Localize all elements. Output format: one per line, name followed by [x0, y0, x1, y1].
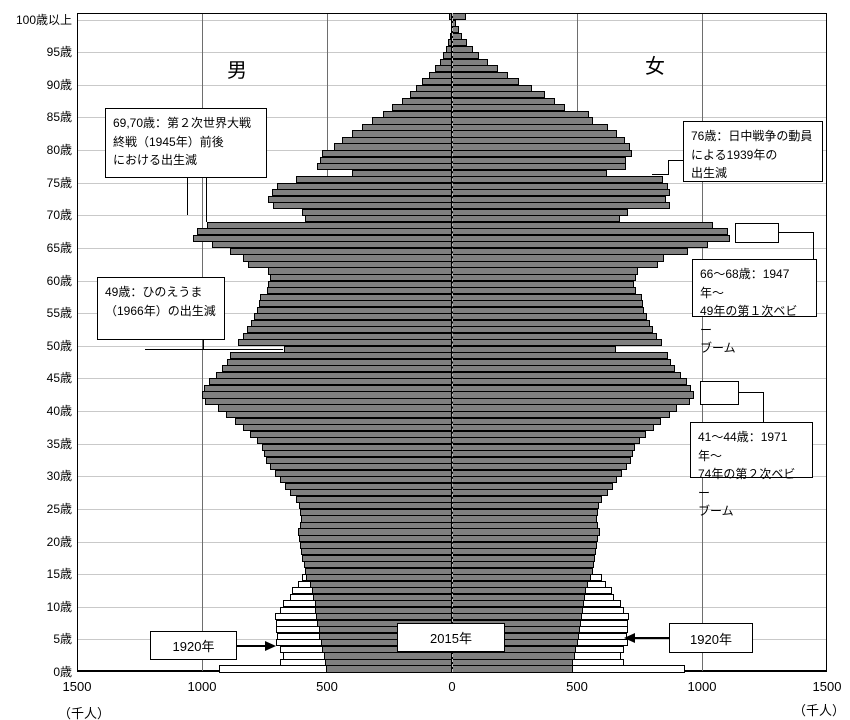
bar-female-2015-age-96: [452, 39, 467, 46]
bar-male-2015-age-77: [317, 163, 452, 170]
bar-female-2015-age-37: [452, 424, 654, 431]
age-tick-40: 40歳: [0, 404, 72, 418]
unit-label-left: （千人）: [58, 703, 110, 720]
age-tick-100plus: 100歳以上: [0, 13, 72, 27]
bar-female-2015-age-84: [452, 117, 593, 124]
bar-male-2015-age-63: [243, 254, 452, 261]
bar-male-2015-age-11: [313, 594, 452, 601]
annotation-bracket-baby-boom-2: [700, 381, 739, 405]
bar-male-2015-age-48: [230, 352, 452, 359]
arrow-left-icon: [624, 633, 635, 643]
bar-male-2015-age-37: [243, 424, 453, 431]
bar-female-2015-age-53: [452, 320, 650, 327]
bar-female-2015-age-79: [452, 150, 632, 157]
bar-female-2015-age-85: [452, 111, 589, 118]
age-tick-55: 55歳: [0, 306, 72, 320]
bar-female-2015-age-93: [452, 59, 488, 66]
age-tick-20: 20歳: [0, 535, 72, 549]
age-tick-65: 65歳: [0, 241, 72, 255]
annotation-bracket-baby-boom-1: [735, 223, 779, 243]
center-axis-line: [452, 13, 453, 672]
annotation-line-ww2-end-0: [187, 178, 188, 215]
bar-male-2015-age-34: [262, 444, 452, 451]
bar-female-2015-age-32: [452, 457, 631, 464]
bar-female-2015-age-30: [452, 470, 622, 477]
bar-female-2015-age-87: [452, 98, 555, 105]
bar-male-2015-age-36: [250, 431, 452, 438]
bar-male-2015-age-71: [273, 202, 452, 209]
bar-female-2015-age-49: [452, 346, 616, 353]
age-tick-5: 5歳: [0, 632, 72, 646]
bar-male-2015-age-86: [392, 104, 452, 111]
bar-male-2015-age-75: [296, 176, 452, 183]
chart-layer: 0歳5歳10歳15歳20歳25歳30歳35歳40歳45歳50歳55歳60歳65歳…: [0, 0, 850, 720]
bar-male-2015-age-26: [296, 496, 452, 503]
bar-male-2015-age-18: [301, 548, 452, 555]
bar-male-2015-age-56: [259, 300, 452, 307]
bar-female-2015-age-36: [452, 431, 646, 438]
bar-female-2015-age-50: [452, 339, 662, 346]
bar-female-2015-age-35: [452, 437, 640, 444]
age-tick-25: 25歳: [0, 502, 72, 516]
bar-male-2015-age-59: [268, 281, 452, 288]
bar-male-2015-age-60: [270, 274, 452, 281]
arrow-line-left: [237, 645, 266, 647]
bar-female-2015-age-28: [452, 483, 613, 490]
bar-male-2015-age-69: [305, 215, 452, 222]
bar-male-2015-age-89: [416, 85, 452, 92]
bar-male-2015-age-33: [264, 450, 452, 457]
bar-male-2015-age-44: [209, 378, 453, 385]
age-tick-90: 90歳: [0, 78, 72, 92]
bar-male-2015-age-76: [352, 170, 452, 177]
bar-male-2015-age-52: [247, 326, 452, 333]
bar-female-2015-age-70: [452, 209, 628, 216]
bar-male-2015-age-81: [342, 137, 452, 144]
bar-male-2015-age-79: [322, 150, 452, 157]
bar-male-2015-age-68: [207, 222, 452, 229]
bar-female-2015-age-2: [452, 652, 575, 659]
bar-female-2015-age-90: [452, 78, 519, 85]
bar-female-2015-age-51: [452, 333, 657, 340]
annotation-line-baby-boom-1-0: [779, 232, 813, 233]
year-callout-2015-label: 2015年: [430, 628, 472, 647]
bar-female-2015-age-41: [452, 398, 690, 405]
annotation-box-baby-boom-2: 41〜44歳：1971年〜 74年の第２次ベビー ブーム: [690, 422, 813, 478]
bar-male-2015-age-57: [260, 294, 452, 301]
bar-female-2015-age-56: [452, 300, 643, 307]
bar-female-2015-age-22: [452, 522, 598, 529]
bar-male-2015-age-50: [238, 339, 453, 346]
x-tick-3: 0: [422, 679, 482, 694]
age-tick-95: 95歳: [0, 45, 72, 59]
bar-female-2015-age-18: [452, 548, 596, 555]
bar-male-2015-age-67: [197, 228, 452, 235]
year-callout-2015: 2015年: [397, 623, 505, 652]
bar-male-2015-age-13: [310, 581, 453, 588]
bar-female-2015-age-88: [452, 91, 545, 98]
bar-male-2015-age-42: [202, 391, 453, 398]
bar-male-2015-age-53: [251, 320, 452, 327]
bar-male-2015-age-92: [435, 65, 453, 72]
bar-female-2015-age-83: [452, 124, 608, 131]
bar-female-2015-age-94: [452, 52, 479, 59]
age-tick-75: 75歳: [0, 176, 72, 190]
bar-male-2015-age-15: [305, 568, 453, 575]
bar-female-2015-age-16: [452, 561, 594, 568]
age-tick-50: 50歳: [0, 339, 72, 353]
female-side-label: 女: [645, 50, 666, 79]
bar-female-2015-age-97: [452, 33, 462, 40]
bar-female-2015-age-0: [452, 665, 573, 672]
bar-male-2015-age-65: [212, 241, 452, 248]
age-tick-85: 85歳: [0, 110, 72, 124]
bar-female-2015-age-62: [452, 261, 658, 268]
year-callout-1920-left: 1920年: [150, 631, 237, 660]
bar-male-2015-age-24: [300, 509, 452, 516]
age-tick-15: 15歳: [0, 567, 72, 581]
bar-female-2015-age-91: [452, 72, 508, 79]
bar-male-2015-age-14: [306, 574, 452, 581]
bar-male-2015-age-10: [315, 600, 453, 607]
bar-male-2015-age-87: [402, 98, 452, 105]
annotation-box-baby-boom-1: 66〜68歳：1947年〜 49年の第１次ベビー ブーム: [692, 259, 817, 317]
age-tick-45: 45歳: [0, 371, 72, 385]
bar-male-2015-age-41: [205, 398, 452, 405]
bar-female-2015-age-34: [452, 444, 635, 451]
bar-male-2015-age-73: [272, 189, 452, 196]
bar-female-2015-age-92: [452, 65, 498, 72]
annotation-line-hinoeuma-0: [203, 340, 204, 349]
age-tick-30: 30歳: [0, 469, 72, 483]
bar-male-2015-age-8: [316, 613, 452, 620]
bar-male-2015-age-78: [320, 157, 452, 164]
bar-male-2015-age-27: [290, 489, 452, 496]
bar-male-2015-age-72: [268, 196, 452, 203]
bar-female-2015-age-82: [452, 130, 617, 137]
bar-male-2015-age-19: [300, 542, 452, 549]
bar-female-2015-age-69: [452, 215, 620, 222]
x-tick-1: 1000: [172, 679, 232, 694]
bar-male-2015-age-88: [410, 91, 453, 98]
annotation-line-dip-1939-2: [652, 174, 668, 175]
bar-female-2015-age-10: [452, 600, 584, 607]
bar-male-2015-age-62: [248, 261, 452, 268]
bar-female-2015-age-76: [452, 170, 607, 177]
bar-female-2015-age-100: [452, 13, 466, 20]
age-tick-80: 80歳: [0, 143, 72, 157]
bar-female-2015-age-46: [452, 365, 675, 372]
bar-female-2015-age-15: [452, 568, 593, 575]
bar-female-2015-age-31: [452, 463, 627, 470]
bar-male-2015-age-21: [298, 528, 453, 535]
bar-male-2015-age-46: [222, 365, 453, 372]
bar-female-2015-age-29: [452, 476, 617, 483]
bar-male-2015-age-39: [226, 411, 452, 418]
bar-male-2015-age-23: [301, 515, 453, 522]
bar-female-2015-age-59: [452, 281, 634, 288]
bar-male-2015-age-49: [284, 346, 452, 353]
bar-male-2015-age-74: [277, 183, 452, 190]
bar-female-2015-age-52: [452, 326, 653, 333]
age-tick-0: 0歳: [0, 665, 72, 679]
bar-male-2015-age-80: [334, 143, 452, 150]
bar-male-2015-age-51: [243, 333, 453, 340]
bar-male-2015-age-94: [443, 52, 452, 59]
bar-male-2015-age-58: [267, 287, 453, 294]
year-callout-1920-left-label: 1920年: [173, 636, 215, 655]
population-pyramid-chart: 0歳5歳10歳15歳20歳25歳30歳35歳40歳45歳50歳55歳60歳65歳…: [0, 0, 850, 720]
male-side-label: 男: [227, 54, 248, 83]
bar-male-2015-age-64: [230, 248, 452, 255]
x-tick-0: 1500: [47, 679, 107, 694]
bar-female-2015-age-66: [452, 235, 730, 242]
bar-female-2015-age-38: [452, 418, 661, 425]
arrow-line-right: [635, 637, 669, 639]
bar-male-2015-age-16: [304, 561, 453, 568]
bar-female-2015-age-60: [452, 274, 636, 281]
bar-female-2015-age-24: [452, 509, 598, 516]
bar-male-2015-age-45: [216, 372, 453, 379]
bar-male-2015-age-82: [352, 130, 452, 137]
arrow-right-icon: [265, 641, 276, 651]
bar-female-2015-age-64: [452, 248, 688, 255]
bar-male-2015-age-2: [324, 652, 453, 659]
annotation-line-ww2-end-1: [206, 178, 207, 222]
annotation-line-baby-boom-1-1: [813, 232, 814, 259]
bar-female-2015-age-80: [452, 143, 630, 150]
bar-female-2015-age-65: [452, 241, 708, 248]
bar-female-2015-age-23: [452, 515, 597, 522]
year-callout-1920-right: 1920年: [669, 623, 753, 653]
bar-male-2015-age-43: [204, 385, 452, 392]
bar-female-2015-age-1: [452, 659, 573, 666]
bar-female-2015-age-19: [452, 542, 597, 549]
bar-female-2015-age-9: [452, 607, 583, 614]
x-tick-4: 500: [547, 679, 607, 694]
bar-male-2015-age-83: [362, 124, 452, 131]
annotation-box-ww2-end: 69,70歳：第２次世界大戦 終戦（1945年）前後 における出生減: [105, 108, 267, 178]
bar-male-2015-age-20: [299, 535, 452, 542]
unit-label-right: （千人）: [793, 700, 845, 719]
year-callout-1920-right-label: 1920年: [690, 629, 732, 648]
bar-female-2015-age-25: [452, 502, 599, 509]
bar-female-2015-age-86: [452, 104, 565, 111]
bar-female-2015-age-57: [452, 294, 642, 301]
bar-female-2015-age-75: [452, 176, 663, 183]
bar-female-2015-age-11: [452, 594, 585, 601]
bar-male-2015-age-29: [280, 476, 452, 483]
bar-female-2015-age-42: [452, 391, 694, 398]
bar-male-2015-age-28: [285, 483, 452, 490]
annotation-box-hinoeuma: 49歳：ひのえうま （1966年）の出生減: [97, 277, 225, 340]
annotation-box-dip-1939: 76歳：日中戦争の動員 による1939年の 出生減: [683, 121, 823, 182]
annotation-line-dip-1939-0: [668, 160, 683, 161]
bar-male-2015-age-91: [429, 72, 452, 79]
bar-male-2015-age-0: [326, 665, 452, 672]
bar-male-2015-age-25: [299, 502, 452, 509]
bar-female-2015-age-39: [452, 411, 670, 418]
bar-male-2015-age-70: [302, 209, 452, 216]
x-tick-6: 1500: [797, 679, 850, 694]
annotation-line-baby-boom-2-0: [739, 392, 763, 393]
bar-female-2015-age-17: [452, 555, 595, 562]
bar-male-2015-age-32: [266, 457, 453, 464]
x-tick-5: 1000: [672, 679, 732, 694]
bar-female-2015-age-47: [452, 359, 671, 366]
bar-male-2015-age-47: [227, 359, 453, 366]
bar-male-2015-age-55: [257, 307, 452, 314]
bar-male-2015-age-1: [325, 659, 452, 666]
age-tick-60: 60歳: [0, 274, 72, 288]
bar-female-2015-age-33: [452, 450, 633, 457]
bar-female-2015-age-73: [452, 189, 670, 196]
bar-male-2015-age-22: [300, 522, 453, 529]
annotation-line-hinoeuma-1: [145, 349, 283, 350]
bar-female-2015-age-78: [452, 157, 626, 164]
annotation-line-baby-boom-2-1: [763, 392, 764, 422]
bar-female-2015-age-27: [452, 489, 608, 496]
bar-male-2015-age-40: [218, 404, 452, 411]
bar-female-2015-age-74: [452, 183, 668, 190]
bar-male-2015-age-38: [235, 418, 452, 425]
bar-male-2015-age-61: [268, 267, 452, 274]
bar-female-2015-age-54: [452, 313, 647, 320]
bar-female-2015-age-95: [452, 46, 473, 53]
age-tick-10: 10歳: [0, 600, 72, 614]
bar-male-2015-age-66: [193, 235, 452, 242]
bar-female-2015-age-61: [452, 267, 638, 274]
bar-male-2015-age-84: [372, 117, 452, 124]
bar-male-2015-age-17: [302, 555, 452, 562]
annotation-line-dip-1939-1: [668, 160, 669, 175]
age-tick-35: 35歳: [0, 437, 72, 451]
bar-female-2015-age-13: [452, 581, 588, 588]
bar-female-2015-age-20: [452, 535, 598, 542]
age-tick-70: 70歳: [0, 208, 72, 222]
bar-female-2015-age-21: [452, 528, 600, 535]
bar-female-2015-age-48: [452, 352, 668, 359]
bar-female-2015-age-67: [452, 228, 728, 235]
bar-female-2015-age-14: [452, 574, 591, 581]
bar-male-2015-age-93: [440, 59, 453, 66]
bar-female-2015-age-55: [452, 307, 644, 314]
bar-male-2015-age-85: [383, 111, 452, 118]
bar-male-2015-age-12: [312, 587, 452, 594]
bar-female-2015-age-43: [452, 385, 691, 392]
bar-male-2015-age-30: [275, 470, 452, 477]
bar-male-2015-age-31: [270, 463, 453, 470]
bar-male-2015-age-9: [315, 607, 452, 614]
bar-female-2015-age-71: [452, 202, 670, 209]
bar-male-2015-age-35: [257, 437, 452, 444]
bar-female-2015-age-72: [452, 196, 666, 203]
bar-female-2015-age-44: [452, 378, 687, 385]
bar-female-2015-age-68: [452, 222, 713, 229]
bar-female-2015-age-8: [452, 613, 582, 620]
bar-female-2015-age-26: [452, 496, 602, 503]
bar-male-2015-age-54: [254, 313, 452, 320]
x-tick-2: 500: [297, 679, 357, 694]
bar-female-2015-age-89: [452, 85, 532, 92]
bar-female-2015-age-77: [452, 163, 626, 170]
bar-female-2015-age-58: [452, 287, 636, 294]
bar-female-2015-age-12: [452, 587, 586, 594]
bar-female-2015-age-40: [452, 404, 677, 411]
bar-male-2015-age-90: [422, 78, 452, 85]
bar-female-2015-age-45: [452, 372, 681, 379]
bar-female-2015-age-81: [452, 137, 625, 144]
bar-female-2015-age-63: [452, 254, 664, 261]
